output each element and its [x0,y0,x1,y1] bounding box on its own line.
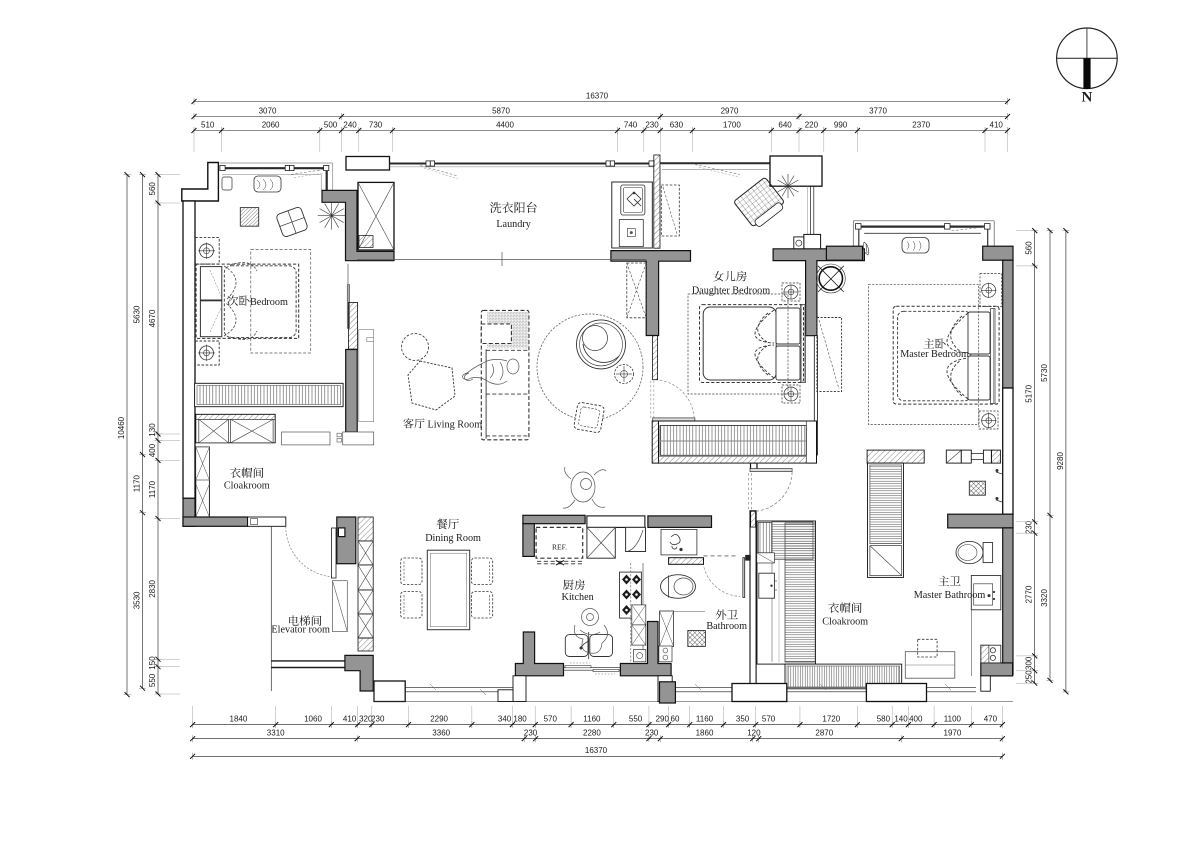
svg-text:410: 410 [343,714,357,723]
svg-text:3770: 3770 [869,106,887,115]
svg-text:2370: 2370 [912,120,930,129]
svg-text:400: 400 [909,714,923,723]
svg-text:120: 120 [747,729,761,738]
svg-text:1720: 1720 [822,714,840,723]
svg-text:Bathroom: Bathroom [706,621,747,632]
svg-text:1170: 1170 [148,480,157,498]
svg-text:730: 730 [369,120,383,129]
svg-text:400: 400 [148,443,157,457]
svg-text:2770: 2770 [1025,585,1034,603]
svg-text:5870: 5870 [492,106,510,115]
svg-text:Master Bedroom: Master Bedroom [900,349,969,360]
svg-text:Kitchen: Kitchen [561,592,593,603]
svg-text:3360: 3360 [432,729,450,738]
svg-text:Master Bathroom: Master Bathroom [914,590,986,601]
svg-text:290: 290 [656,714,670,723]
svg-text:9280: 9280 [1056,452,1065,470]
svg-text:Elevator room: Elevator room [271,625,330,636]
svg-text:1860: 1860 [696,729,714,738]
svg-text:4670: 4670 [148,309,157,327]
svg-text:640: 640 [778,120,792,129]
svg-text:2290: 2290 [430,714,448,723]
svg-text:1840: 1840 [230,714,248,723]
svg-text:1970: 1970 [944,729,962,738]
svg-text:230: 230 [645,120,659,129]
svg-text:350: 350 [736,714,750,723]
svg-text:REF.: REF. [552,543,567,552]
svg-text:10460: 10460 [117,416,126,439]
svg-text:1060: 1060 [304,714,322,723]
svg-text:Laundry: Laundry [496,219,531,230]
svg-text:Daughter Bedroom: Daughter Bedroom [692,286,770,297]
svg-text:230: 230 [524,729,538,738]
svg-text:250: 250 [1025,670,1034,684]
svg-text:300: 300 [1025,656,1034,670]
svg-text:Dining Room: Dining Room [425,533,481,544]
svg-text:550: 550 [148,673,157,687]
svg-text:5730: 5730 [1040,364,1049,382]
svg-text:500: 500 [324,120,338,129]
svg-text:2280: 2280 [583,729,601,738]
svg-text:2830: 2830 [148,579,157,597]
svg-text:570: 570 [762,714,776,723]
svg-text:3070: 3070 [259,106,277,115]
svg-text:Bedroom: Bedroom [250,297,288,308]
svg-text:150: 150 [148,656,157,670]
svg-text:Living Room: Living Room [428,420,483,431]
svg-text:340: 340 [498,714,512,723]
svg-text:60: 60 [671,714,680,723]
svg-text:570: 570 [544,714,558,723]
svg-text:230: 230 [1025,520,1034,534]
svg-text:560: 560 [148,182,157,196]
svg-text:N: N [1081,90,1092,106]
svg-text:220: 220 [805,120,819,129]
svg-text:740: 740 [624,120,638,129]
svg-text:580: 580 [877,714,891,723]
svg-text:230: 230 [371,714,385,723]
svg-text:Cloakroom: Cloakroom [224,481,270,492]
svg-text:630: 630 [670,120,684,129]
svg-text:180: 180 [513,714,527,723]
svg-text:1160: 1160 [696,714,714,723]
svg-text:3310: 3310 [267,729,285,738]
svg-text:2870: 2870 [815,729,833,738]
svg-text:560: 560 [1025,241,1034,255]
svg-text:Cloakroom: Cloakroom [822,617,868,628]
svg-text:990: 990 [834,120,848,129]
svg-text:4400: 4400 [496,120,514,129]
svg-text:1100: 1100 [944,714,962,723]
svg-text:140: 140 [894,714,908,723]
svg-text:16370: 16370 [585,746,608,755]
svg-text:470: 470 [984,714,998,723]
svg-text:1700: 1700 [723,120,741,129]
svg-text:3320: 3320 [1040,589,1049,607]
svg-text:5630: 5630 [133,305,142,323]
svg-text:1170: 1170 [133,474,142,492]
svg-text:2060: 2060 [262,120,280,129]
svg-text:510: 510 [201,120,215,129]
svg-text:2970: 2970 [721,106,739,115]
svg-text:16370: 16370 [586,92,609,101]
svg-text:230: 230 [645,729,659,738]
svg-text:240: 240 [343,120,357,129]
svg-text:550: 550 [629,714,643,723]
svg-text:130: 130 [148,423,157,437]
svg-text:1160: 1160 [583,714,601,723]
svg-text:3530: 3530 [133,591,142,609]
svg-text:410: 410 [990,120,1004,129]
svg-text:5170: 5170 [1025,384,1034,402]
